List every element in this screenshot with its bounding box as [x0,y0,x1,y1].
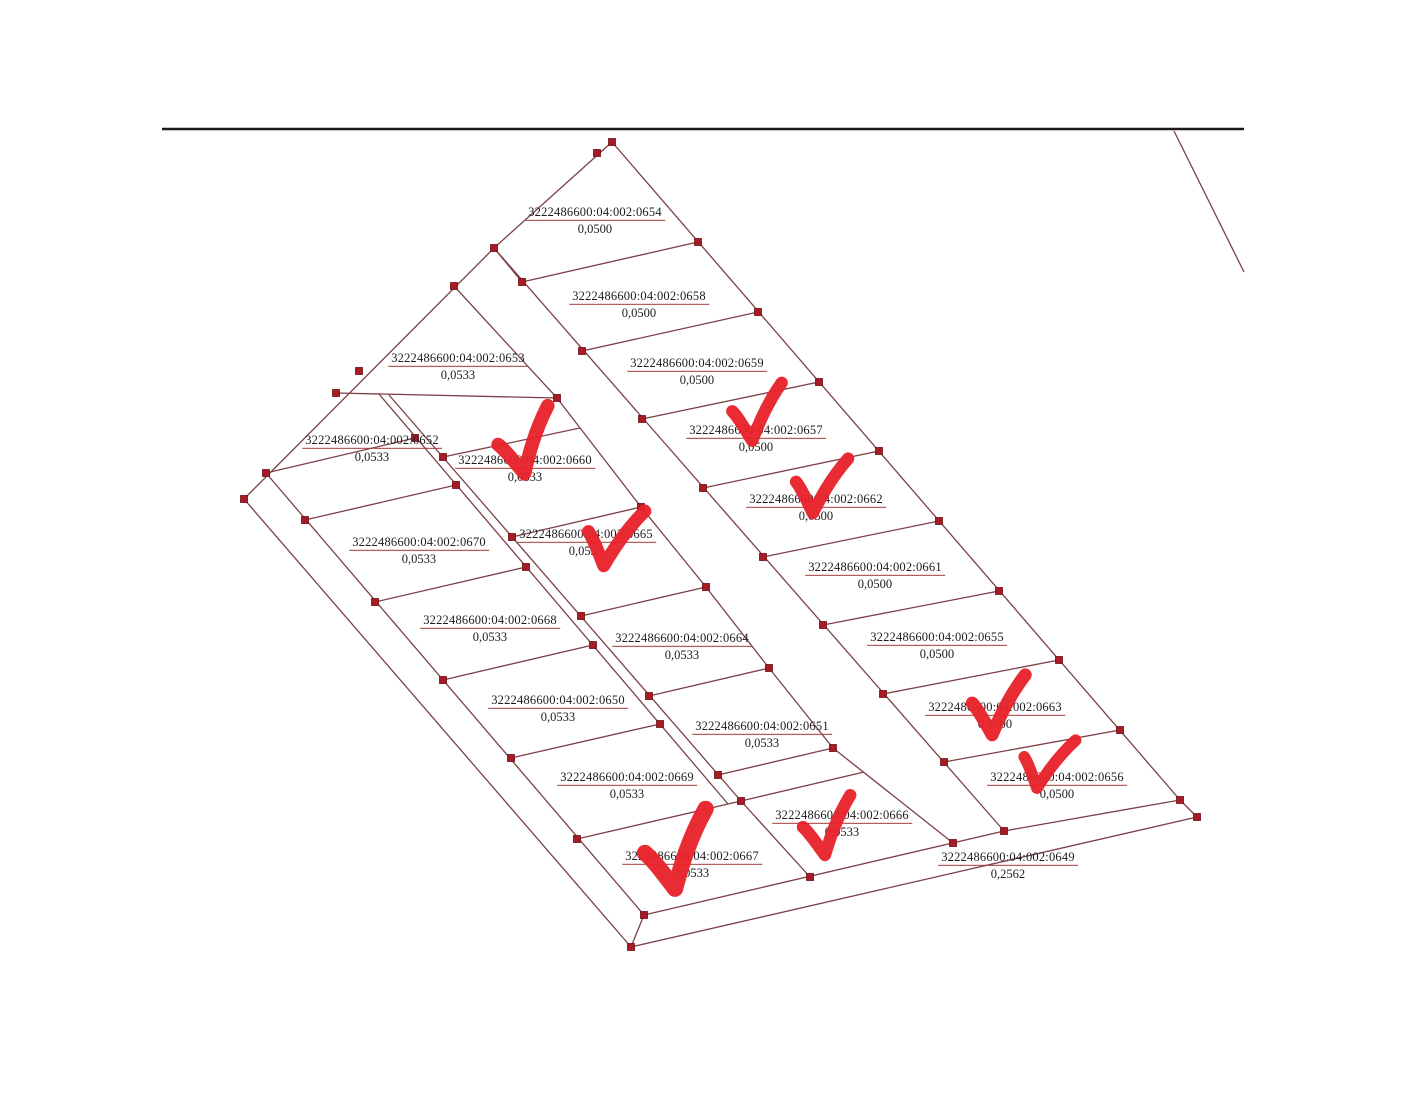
parcel-area: 0,0500 [925,716,1065,732]
parcel-number: 3222486600:04:002:0664 [612,631,752,647]
parcel-label-0662: 3222486600:04:002:06620,0500 [746,490,886,524]
parcel-label-0650: 3222486600:04:002:06500,0533 [488,691,628,725]
parcel-number: 3222486600:04:002:0652 [302,433,442,449]
parcel-area: 0,0533 [488,709,628,725]
cadastral-map: 3222486600:04:002:06540,05003222486600:0… [0,0,1405,1099]
parcel-label-0649: 3222486600:04:002:06490,2562 [938,848,1078,882]
parcel-area: 0,0533 [349,551,489,567]
parcel-number: 3222486600:04:002:0669 [557,770,697,786]
parcel-label-0665: 3222486600:04:002:06650,0533 [516,525,656,559]
parcel-number: 3222486600:04:002:0657 [686,423,826,439]
parcel-label-0653: 3222486600:04:002:06530,0533 [388,349,528,383]
parcel-number: 3222486600:04:002:0659 [627,356,767,372]
parcel-number: 3222486600:04:002:0668 [420,613,560,629]
parcel-number: 3222486600:04:002:0653 [388,351,528,367]
parcel-label-0666: 3222486600:04:002:06660,0533 [772,806,912,840]
parcel-area: 0,0500 [686,439,826,455]
parcel-label-0661: 3222486600:04:002:06610,0500 [805,558,945,592]
parcel-label-0663: 3222486600:04:002:06630,0500 [925,698,1065,732]
parcel-label-0668: 3222486600:04:002:06680,0533 [420,611,560,645]
parcel-label-0651: 3222486600:04:002:06510,0533 [692,717,832,751]
parcel-area: 0,0500 [746,508,886,524]
parcel-label-0659: 3222486600:04:002:06590,0500 [627,354,767,388]
parcel-area: 0,0533 [455,469,595,485]
parcel-area: 0,0533 [772,824,912,840]
parcel-area: 0,0500 [987,786,1127,802]
parcel-number: 3222486600:04:002:0663 [925,700,1065,716]
parcel-number: 3222486600:04:002:0662 [746,492,886,508]
parcel-area: 0,2562 [938,866,1078,882]
parcel-label-0664: 3222486600:04:002:06640,0533 [612,629,752,663]
parcel-number: 3222486600:04:002:0656 [987,770,1127,786]
parcel-label-0667: 3222486600:04:002:06670,0533 [622,847,762,881]
parcel-labels-layer: 3222486600:04:002:06540,05003222486600:0… [0,0,1405,1099]
parcel-number: 3222486600:04:002:0667 [622,849,762,865]
parcel-area: 0,0533 [388,367,528,383]
parcel-area: 0,0533 [612,647,752,663]
parcel-number: 3222486600:04:002:0658 [569,289,709,305]
parcel-label-0654: 3222486600:04:002:06540,0500 [525,203,665,237]
parcel-area: 0,0533 [420,629,560,645]
parcel-area: 0,0533 [557,786,697,802]
parcel-label-0655: 3222486600:04:002:06550,0500 [867,628,1007,662]
parcel-label-0670: 3222486600:04:002:06700,0533 [349,533,489,567]
parcel-area: 0,0533 [302,449,442,465]
parcel-number: 3222486600:04:002:0670 [349,535,489,551]
parcel-label-0656: 3222486600:04:002:06560,0500 [987,768,1127,802]
parcel-label-0660: 3222486600:04:002:06600,0533 [455,451,595,485]
parcel-area: 0,0500 [525,221,665,237]
parcel-area: 0,0500 [569,305,709,321]
parcel-number: 3222486600:04:002:0665 [516,527,656,543]
parcel-number: 3222486600:04:002:0654 [525,205,665,221]
parcel-label-0652: 3222486600:04:002:06520,0533 [302,431,442,465]
parcel-number: 3222486600:04:002:0655 [867,630,1007,646]
parcel-number: 3222486600:04:002:0650 [488,693,628,709]
parcel-area: 0,0533 [692,735,832,751]
parcel-number: 3222486600:04:002:0649 [938,850,1078,866]
parcel-number: 3222486600:04:002:0660 [455,453,595,469]
parcel-label-0657: 3222486600:04:002:06570,0500 [686,421,826,455]
parcel-label-0658: 3222486600:04:002:06580,0500 [569,287,709,321]
parcel-number: 3222486600:04:002:0651 [692,719,832,735]
parcel-area: 0,0500 [627,372,767,388]
parcel-area: 0,0500 [867,646,1007,662]
parcel-label-0669: 3222486600:04:002:06690,0533 [557,768,697,802]
parcel-number: 3222486600:04:002:0666 [772,808,912,824]
parcel-area: 0,0533 [516,543,656,559]
parcel-area: 0,0533 [622,865,762,881]
parcel-area: 0,0500 [805,576,945,592]
parcel-number: 3222486600:04:002:0661 [805,560,945,576]
